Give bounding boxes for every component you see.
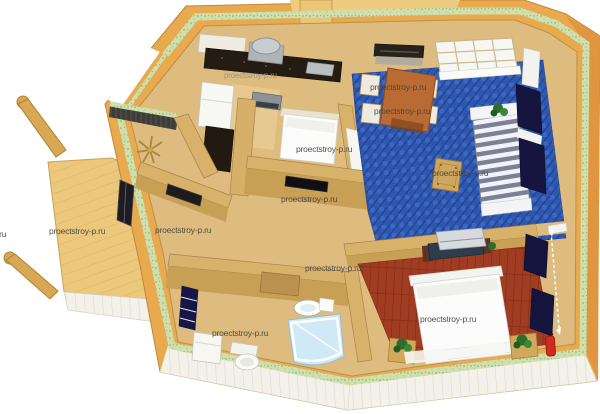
watermark-text: proectstroy-p.ru <box>305 263 362 273</box>
watermark-text: proectstroy-p.ru <box>420 314 477 324</box>
nightstand-right <box>510 333 538 359</box>
bathroom-door <box>260 272 300 296</box>
floor-plan-svg: proectstroy-p.ru proectstroy-p.ru proect… <box>0 0 600 414</box>
floor-plan-render: proectstroy-p.ru proectstroy-p.ru proect… <box>0 0 600 414</box>
fire-extinguisher <box>545 334 555 356</box>
watermark-text: proectstroy-p.ru <box>49 226 106 236</box>
watermark-text: proectstroy-p.ru <box>224 71 277 80</box>
skylight-window <box>435 38 521 80</box>
tv <box>436 228 486 250</box>
watermark-text: proectstroy-p.ru <box>281 194 338 204</box>
cooker-hood-dome <box>252 38 280 54</box>
curtain-navy <box>516 84 542 134</box>
curtain-navy <box>524 234 548 278</box>
fridge <box>198 82 234 130</box>
watermark-text: proectstroy-p.ru <box>212 328 269 338</box>
fireplace-niche <box>374 44 424 66</box>
watermark-text: proectstroy-p.ru <box>370 82 427 92</box>
hall-left-windows <box>117 180 134 226</box>
watermark-text: proectstroy-p.ru <box>432 168 489 178</box>
pot-plant-small <box>488 242 496 250</box>
curtain-navy <box>530 288 554 336</box>
towel-shelf-navy <box>179 286 198 330</box>
watermark-text: proectstroy-p.ru <box>155 225 212 235</box>
porch-pole-upper <box>17 96 66 157</box>
corner-window-sill <box>522 48 540 88</box>
porch-pole-lower <box>4 252 58 299</box>
shower-cabin <box>288 314 344 365</box>
watermark-text: proectstroy-p.ru <box>0 229 7 239</box>
curtain-navy <box>519 138 546 194</box>
watermark-text: proectstroy-p.ru <box>296 144 353 154</box>
watermark-text: proectstroy-p.ru <box>374 106 431 116</box>
